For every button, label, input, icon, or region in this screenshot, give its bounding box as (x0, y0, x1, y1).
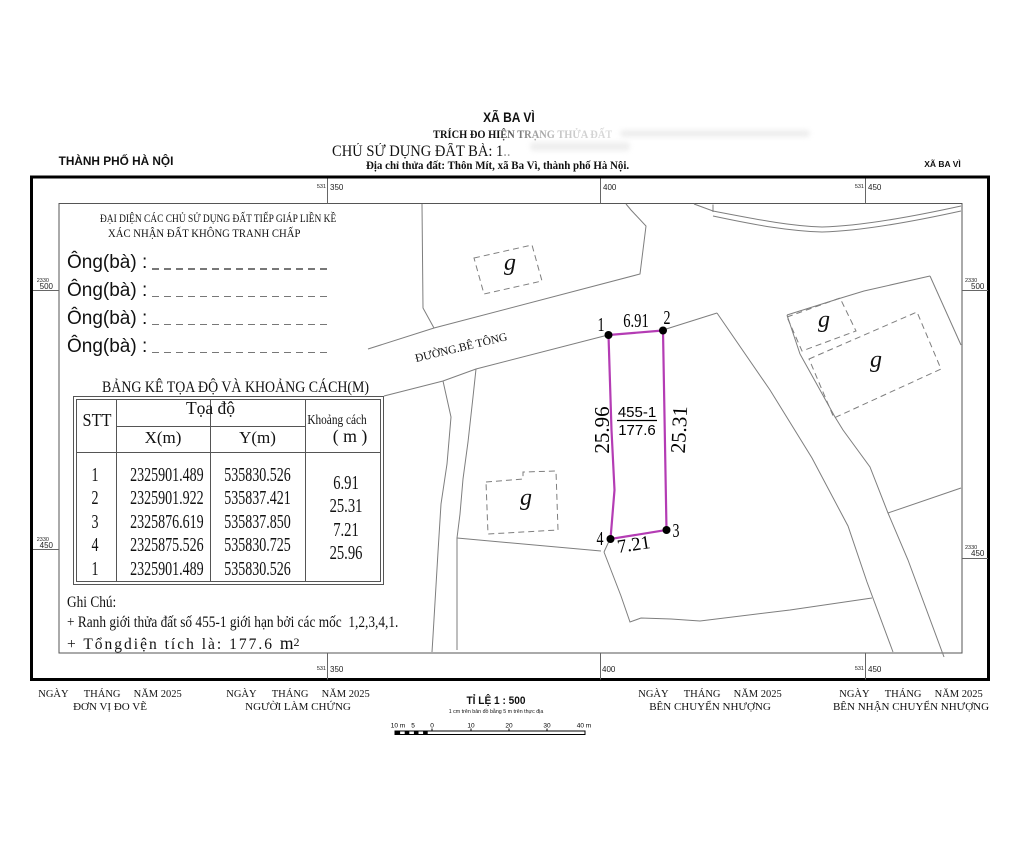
svg-text:450: 450 (971, 549, 985, 558)
svg-text:177.6: 177.6 (618, 422, 656, 439)
svg-text:450: 450 (868, 183, 882, 192)
svg-text:25.31: 25.31 (666, 405, 692, 453)
svg-text:500: 500 (971, 282, 985, 291)
svg-text:7.21: 7.21 (616, 532, 652, 558)
svg-text:ĐƯỜNG.BÊ TÔNG: ĐƯỜNG.BÊ TÔNG (414, 329, 509, 365)
svg-text:40 m: 40 m (577, 723, 591, 730)
svg-text:1: 1 (598, 314, 605, 336)
svg-text:531: 531 (855, 184, 864, 190)
svg-text:531: 531 (317, 184, 326, 190)
svg-text:2: 2 (664, 307, 671, 329)
svg-text:455-1: 455-1 (618, 404, 656, 421)
svg-text:400: 400 (602, 665, 616, 674)
svg-text:3: 3 (673, 520, 680, 542)
svg-text:531: 531 (317, 666, 326, 672)
svg-text:5: 5 (411, 723, 415, 730)
svg-text:10: 10 (467, 723, 475, 730)
svg-text:350: 350 (330, 665, 344, 674)
svg-text:25.96: 25.96 (590, 406, 614, 453)
svg-text:10 m: 10 m (391, 723, 405, 730)
svg-text:g: g (870, 347, 882, 373)
svg-text:g: g (504, 250, 516, 276)
svg-text:400: 400 (603, 183, 617, 192)
svg-text:350: 350 (330, 183, 344, 192)
svg-text:20: 20 (505, 723, 513, 730)
svg-text:531: 531 (855, 666, 864, 672)
svg-text:g: g (520, 485, 532, 511)
svg-text:30: 30 (543, 723, 551, 730)
svg-text:0: 0 (430, 723, 434, 730)
svg-text:g: g (818, 307, 830, 333)
svg-text:450: 450 (868, 665, 882, 674)
svg-text:6.91: 6.91 (623, 309, 649, 332)
svg-text:500: 500 (40, 282, 54, 291)
svg-text:450: 450 (40, 541, 54, 550)
svg-text:4: 4 (597, 528, 604, 550)
